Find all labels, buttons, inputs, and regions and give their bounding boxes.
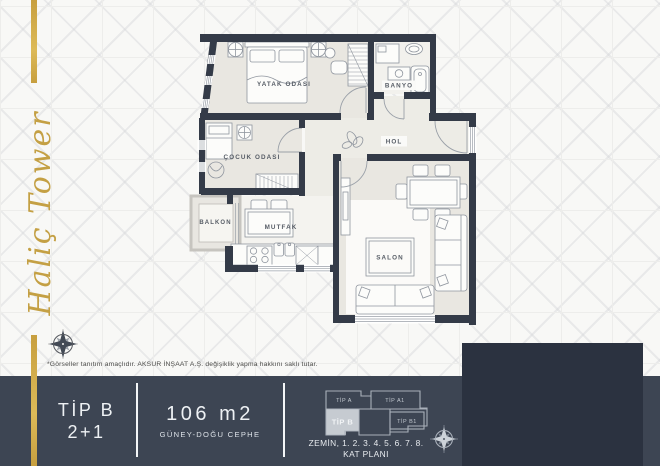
gold-accent-bar-bottom: [31, 335, 37, 466]
kitchen-counter: [231, 243, 336, 265]
hall-plant: [341, 130, 365, 150]
decorative-dark-panel: [462, 343, 643, 466]
unit-type-label: TİP B: [58, 399, 115, 422]
unit-layout-label: 2+1: [67, 421, 105, 444]
sofa: [356, 285, 434, 314]
living-room-door: [341, 161, 367, 187]
gold-accent-bar-top: [31, 0, 37, 83]
brand-title: Haliç Tower: [19, 73, 63, 353]
furniture: [206, 42, 467, 314]
entrance-door: [435, 121, 467, 153]
double-bed: [245, 42, 309, 103]
beanbag: [208, 162, 224, 178]
info-bar-divider-1: [136, 383, 138, 457]
washing-machine: [376, 44, 399, 63]
shaft-hatch: [348, 44, 368, 86]
disclaimer-text: *Görseller tanıtım amaçlıdır. AKSUR İNŞA…: [47, 361, 327, 368]
tv-unit: [341, 178, 350, 235]
single-bed: [206, 123, 232, 159]
unit-area-block: 106 m2 GÜNEY-DOĞU CEPHE: [140, 376, 280, 466]
wardrobe: [256, 174, 298, 192]
windows: [198, 55, 477, 324]
key-plan-caption-line2: KAT PLANI: [288, 449, 444, 459]
doors: [278, 87, 467, 187]
balcony: [191, 196, 240, 250]
kitchen-table-chairs: [245, 200, 293, 237]
key-plan-caption-line1: ZEMİN, 1. 2. 3. 4. 5. 6. 7. 8.: [288, 438, 444, 448]
bathtub: [411, 66, 429, 95]
label-yatak-odasi: YATAK ODASI: [257, 81, 311, 88]
walls: [199, 34, 476, 325]
unit-type-block: TİP B 2+1: [37, 376, 136, 466]
corner-sofa: [435, 215, 467, 291]
unit-area-value: 106 m2: [166, 403, 254, 426]
room-floors: [202, 40, 471, 318]
bedroom-door: [340, 87, 366, 113]
label-banyo: BANYO: [385, 83, 413, 90]
label-cocuk-odasi: ÇOCUK ODASI: [224, 154, 281, 161]
nightstand-lamp-left: [228, 42, 243, 57]
room-labels: YATAK ODASI BANYO ÇOCUK ODASI HOL BALKON…: [199, 81, 416, 262]
nightstand-lamp-right: [311, 42, 326, 57]
label-balkon: BALKON: [199, 220, 231, 226]
bathroom-sink: [406, 44, 423, 55]
label-mutfak: MUTFAK: [265, 224, 298, 231]
label-hol: HOL: [386, 139, 403, 146]
bedroom-armchair: [325, 48, 347, 74]
label-salon: SALON: [376, 255, 404, 262]
dining-table-chairs: [396, 165, 467, 220]
bathroom-door: [384, 99, 404, 119]
kids-room-door: [278, 128, 302, 152]
unit-facade-label: GÜNEY-DOĞU CEPHE: [160, 430, 261, 439]
vanity-basin: [388, 67, 410, 80]
info-bar-divider-2: [283, 383, 285, 457]
kids-side-table-lamp: [237, 125, 252, 140]
floor-plan-page: Haliç Tower *Görseller tanıtım amaçlıdır…: [0, 0, 660, 466]
coffee-table: [366, 238, 414, 276]
